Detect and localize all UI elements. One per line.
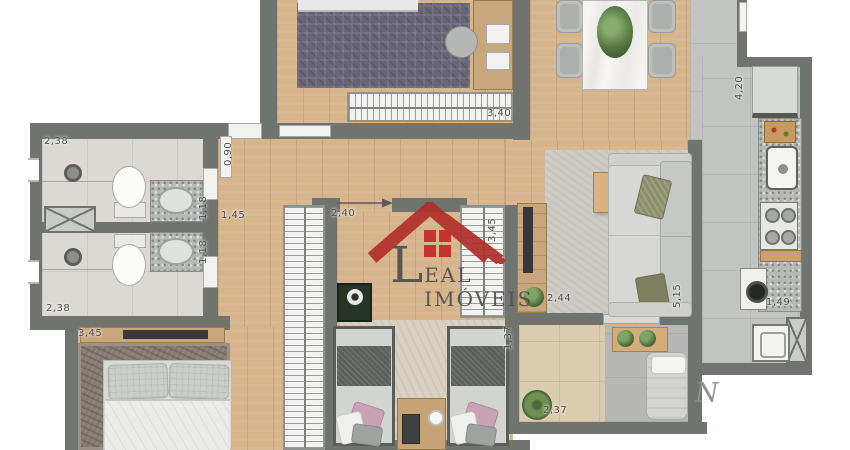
desk-organizer (486, 24, 510, 44)
shower-glass-divider (42, 181, 113, 182)
wall-segment (30, 123, 42, 330)
wall-segment (505, 313, 603, 325)
lounge-pillow (651, 356, 686, 374)
dim-label-living-width: 2,44 (547, 293, 571, 304)
tv (523, 207, 533, 273)
wall-segment (513, 0, 530, 140)
dim-label-kitchen-length: 4,20 (734, 76, 745, 100)
burner-icon (765, 230, 780, 245)
dim-label-bedroom2-wardrobe: 3,45 (487, 218, 498, 242)
dim-label-balcony-width: 2,37 (543, 405, 567, 416)
dim-label-bath2-sink: 1,18 (198, 240, 209, 264)
bedroom1-desk (473, 0, 513, 90)
burner-icon (765, 208, 780, 223)
washing-machine-icon (740, 268, 767, 310)
entry-opening (228, 123, 262, 139)
pillow (107, 363, 168, 400)
toilet-icon (112, 166, 146, 208)
pillow-gray (351, 423, 383, 447)
fridge (752, 66, 798, 118)
dim-label-bedroom1-width: 3,40 (487, 108, 511, 119)
sink-icon (158, 187, 194, 214)
twin-bed (447, 326, 509, 446)
bedroom2-desk-pc (337, 283, 372, 322)
wall-segment (65, 330, 78, 450)
desk-organizer (486, 52, 510, 70)
floor-plan: 2,38 1,18 1,18 2,38 3,45 0,90 1,45 2,40 … (0, 0, 850, 450)
dim-label-master-width: 3,45 (78, 328, 102, 339)
dining-chair (648, 0, 676, 33)
toilet-icon (112, 244, 146, 286)
bathroom-window (28, 158, 39, 182)
master-bed (103, 360, 232, 450)
bathroom-window (28, 260, 39, 284)
kitchen-cabinet (739, 2, 747, 32)
desk-chair (445, 26, 478, 58)
kitchen-sink (766, 146, 798, 190)
bedroom1-bed (298, 0, 418, 12)
shower-glass-divider (42, 269, 113, 270)
corridor-wardrobe (283, 205, 325, 450)
plant-icon (617, 330, 634, 347)
laundry-sink (752, 324, 790, 362)
wall-segment (260, 0, 277, 139)
table-plant-icon (597, 6, 633, 58)
dim-label-corridor-width: 1,45 (221, 210, 245, 221)
plant-icon (639, 330, 656, 347)
bed-blanket (337, 346, 391, 386)
sink-icon (158, 238, 194, 265)
master-tv (123, 330, 208, 339)
dim-label-bath1-width: 2,38 (44, 136, 68, 147)
dining-chair (556, 0, 583, 33)
wall-segment (392, 198, 467, 212)
burner-icon (781, 208, 796, 223)
wall-segment (203, 123, 218, 330)
dining-chair (648, 43, 676, 78)
dim-label-hall-width: 0,90 (223, 142, 234, 166)
dim-label-laundry-width: 1,49 (766, 297, 790, 308)
bedroom2-wardrobe (460, 205, 505, 318)
dim-label-balcony-depth: 1,37 (503, 326, 514, 350)
bedroom1-sliding-door (279, 125, 331, 137)
shower-icon (64, 164, 82, 182)
wall-segment (505, 205, 517, 313)
burner-icon (781, 230, 796, 245)
bed-duvet (105, 399, 230, 450)
wall-segment (697, 363, 812, 375)
dim-label-bath2-width: 2,38 (46, 303, 70, 314)
shower-icon (64, 248, 82, 266)
counter-wood-strip (760, 250, 802, 262)
wall-segment (519, 422, 707, 434)
stove-icon (760, 202, 798, 250)
cutting-board (764, 121, 796, 143)
plant-icon (524, 287, 544, 307)
pillow-gray (465, 423, 497, 447)
lamp-icon (428, 410, 444, 426)
dim-label-hall-length: 2,40 (331, 208, 355, 219)
dim-label-bath1-sink: 1,18 (198, 196, 209, 220)
twin-bed (333, 326, 395, 446)
lounge-chair (646, 352, 688, 420)
pillow (168, 363, 229, 400)
bathroom-shaft-x-icon (44, 206, 96, 233)
bed-blanket (451, 346, 505, 386)
nightstand-tray (402, 414, 420, 444)
dining-chair (556, 43, 583, 78)
dim-label-living-length: 5,15 (672, 284, 683, 308)
north-letter: N (695, 378, 719, 409)
bedroom1-rug (297, 3, 470, 88)
